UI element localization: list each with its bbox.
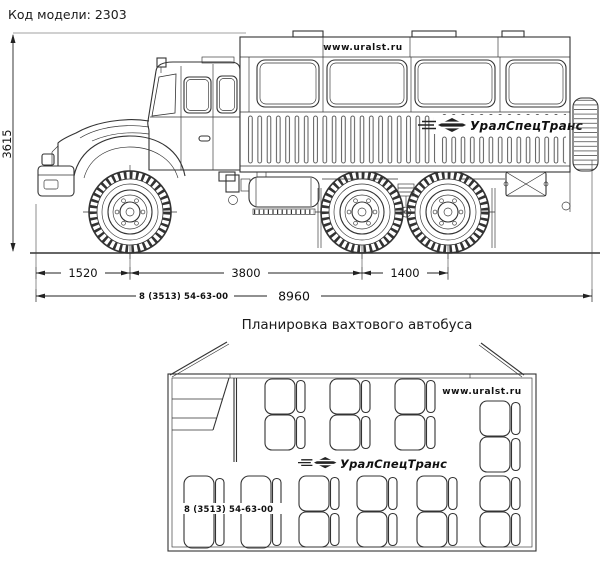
- partition-rail: [234, 378, 237, 462]
- seat-group: [395, 379, 435, 450]
- seat-group: [480, 401, 520, 472]
- front-bumper: [38, 166, 74, 196]
- side-phone-label: 8 (3513) 54-63-00: [139, 292, 228, 302]
- dim-bogie-label: 1400: [390, 266, 419, 280]
- seat-group: [480, 476, 520, 547]
- roof-hatch: [293, 31, 323, 37]
- spare-wheel: [573, 98, 598, 171]
- dim-height-label: 3615: [0, 129, 14, 158]
- front-wheel: [83, 165, 177, 259]
- plan-phone-label: 8 (3513) 54-63-00: [184, 505, 273, 515]
- plan-phone: 8 (3513) 54-63-00: [181, 503, 284, 515]
- plan-brand-label: УралСпецТранс: [340, 457, 447, 471]
- plan-walls: [168, 342, 536, 551]
- door-handle: [199, 136, 210, 141]
- side-brand-logo: УралСпецТранс: [418, 115, 583, 134]
- page: Код модели: 2303: [0, 0, 600, 582]
- plan-brand-logo: УралСпецТранс: [298, 457, 447, 471]
- plan-title: Планировка вахтового автобуса: [0, 317, 600, 333]
- ust-logo-icon: [298, 457, 336, 468]
- side-view-drawing: 3615: [0, 0, 600, 312]
- seat-group: [417, 476, 457, 547]
- seat-group: [330, 379, 370, 450]
- left-door-flap: [170, 342, 227, 375]
- rear-tool-box: [504, 172, 548, 196]
- roof-hatch: [502, 31, 524, 37]
- plan-website-label: www.uralst.ru: [442, 387, 522, 397]
- entry-vestibule: [172, 378, 237, 462]
- cab: [148, 57, 240, 170]
- seat-group: [357, 476, 397, 547]
- dim-wheelbase-label: 3800: [231, 266, 260, 280]
- seat-group: [265, 379, 305, 450]
- right-door-flap: [481, 343, 524, 375]
- dim-front-overhang-label: 1520: [68, 266, 97, 280]
- side-website-label: www.uralst.ru: [323, 43, 403, 53]
- dim-total-length-label: 8960: [278, 289, 310, 304]
- seat-group: [299, 476, 339, 547]
- side-brand-label: УралСпецТранс: [470, 119, 583, 133]
- roof-hatch: [412, 31, 456, 37]
- fuel-tank: [249, 177, 319, 207]
- plan-view-drawing: www.uralst.ru УралСпецТранс 8 (3513) 54-…: [0, 335, 600, 582]
